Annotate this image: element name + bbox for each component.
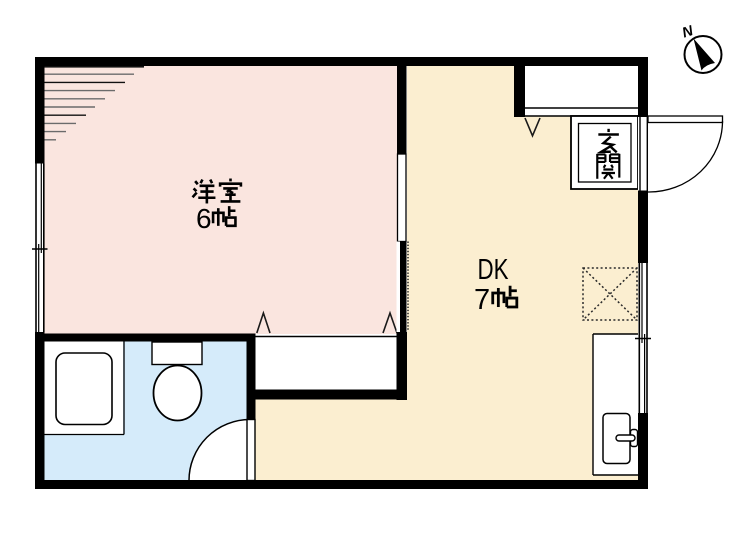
svg-text:N: N — [680, 23, 695, 42]
svg-text:DK: DK — [478, 254, 509, 286]
svg-text:7: 7 — [474, 284, 490, 316]
svg-text:6: 6 — [196, 203, 212, 234]
